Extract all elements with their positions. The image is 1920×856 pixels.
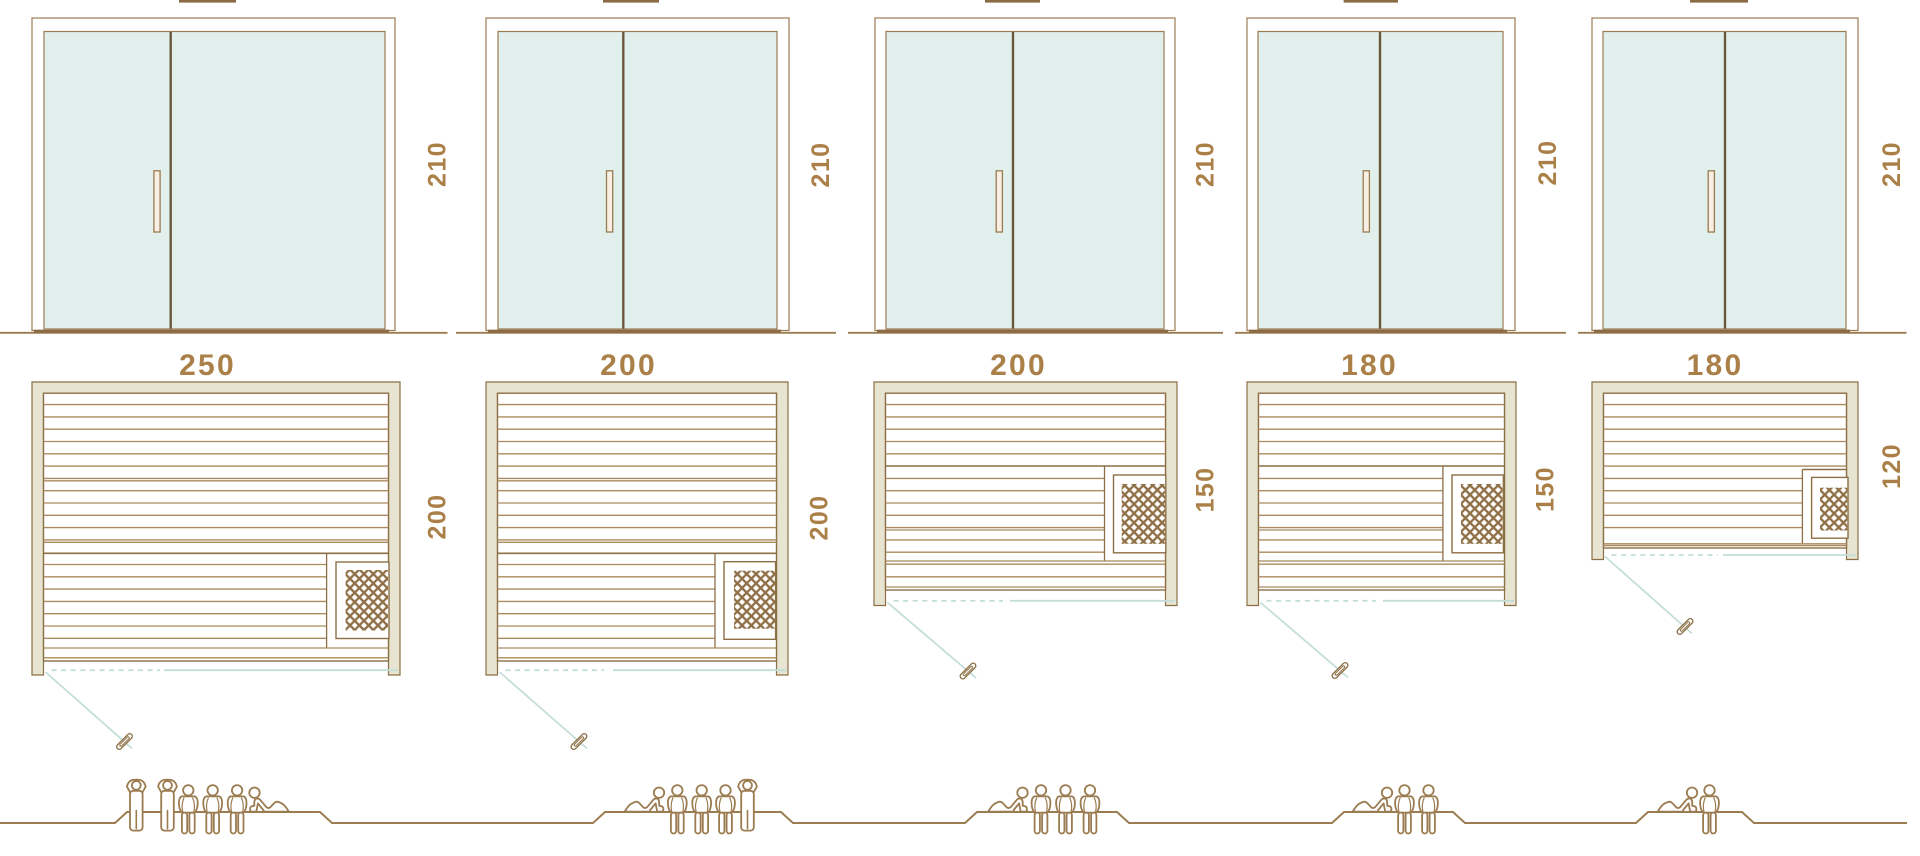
svg-text:180: 180 <box>1341 349 1398 382</box>
svg-text:150: 150 <box>1532 466 1560 512</box>
svg-text:200: 200 <box>806 495 834 541</box>
svg-text:210: 210 <box>424 141 452 187</box>
svg-text:210: 210 <box>1534 140 1562 186</box>
svg-text:200: 200 <box>990 349 1047 382</box>
svg-text:150: 150 <box>1192 467 1220 513</box>
svg-text:210: 210 <box>1192 141 1220 187</box>
svg-text:200: 200 <box>600 349 657 382</box>
svg-text:210: 210 <box>807 142 835 188</box>
svg-text:210: 210 <box>1878 141 1906 187</box>
svg-text:120: 120 <box>1878 443 1906 489</box>
svg-text:180: 180 <box>1687 349 1744 382</box>
svg-text:250: 250 <box>179 349 236 382</box>
svg-text:200: 200 <box>424 494 452 540</box>
